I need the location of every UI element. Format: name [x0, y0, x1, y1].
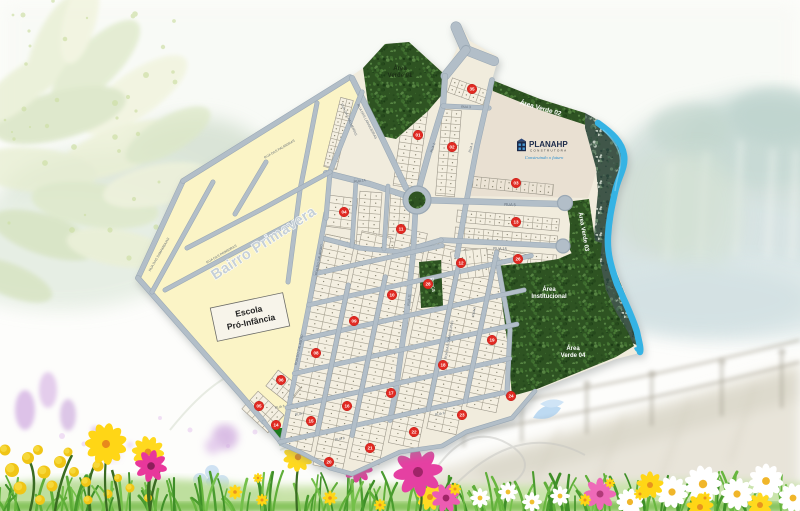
svg-text:35: 35	[469, 87, 475, 92]
svg-text:06: 06	[278, 378, 284, 383]
svg-text:Área: Área	[566, 345, 580, 352]
svg-text:CONSTRUTORA: CONSTRUTORA	[530, 149, 567, 153]
svg-text:04: 04	[341, 210, 347, 215]
svg-text:08: 08	[313, 351, 319, 356]
svg-text:17: 17	[388, 391, 394, 396]
svg-text:12: 12	[458, 261, 464, 266]
svg-text:Verde 01: Verde 01	[388, 73, 413, 79]
svg-text:10: 10	[389, 293, 395, 298]
svg-text:22: 22	[411, 430, 417, 435]
svg-text:21: 21	[367, 446, 373, 451]
svg-text:23: 23	[459, 413, 465, 418]
svg-text:09: 09	[351, 319, 357, 324]
svg-text:01: 01	[415, 133, 421, 138]
svg-text:02: 02	[449, 145, 455, 150]
svg-text:26: 26	[515, 257, 521, 262]
svg-text:15: 15	[308, 419, 314, 424]
svg-text:Institucional: Institucional	[531, 294, 567, 300]
svg-text:Área: Área	[542, 286, 556, 293]
svg-text:11: 11	[399, 227, 404, 232]
svg-text:16: 16	[344, 404, 350, 409]
svg-text:RUA 15: RUA 15	[493, 246, 508, 252]
svg-text:Verde 04: Verde 04	[561, 353, 586, 359]
svg-text:05: 05	[256, 404, 262, 409]
svg-text:03: 03	[513, 181, 519, 186]
svg-text:Construindo o futuro: Construindo o futuro	[525, 155, 564, 160]
svg-text:14: 14	[273, 423, 279, 428]
svg-text:24: 24	[508, 394, 514, 399]
svg-text:RUA 5: RUA 5	[504, 202, 517, 207]
svg-text:Área: Área	[393, 65, 407, 72]
svg-text:18: 18	[440, 363, 446, 368]
svg-text:13: 13	[513, 220, 519, 225]
svg-text:19: 19	[489, 338, 495, 343]
svg-text:28: 28	[425, 282, 431, 287]
svg-text:20: 20	[326, 460, 332, 465]
svg-text:RUA 3: RUA 3	[461, 105, 471, 109]
